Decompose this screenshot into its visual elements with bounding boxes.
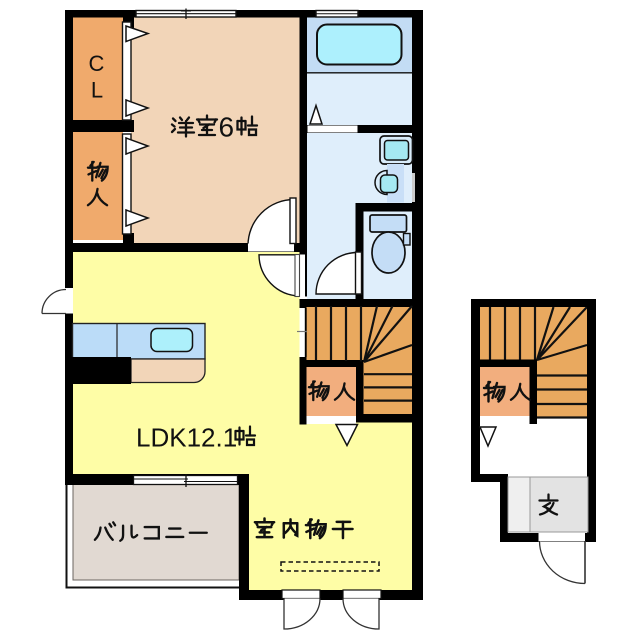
svg-text:L: L	[91, 78, 103, 103]
svg-text:6: 6	[219, 112, 235, 143]
svg-text:LDK12.1: LDK12.1	[136, 423, 237, 453]
svg-text:C: C	[89, 51, 105, 76]
